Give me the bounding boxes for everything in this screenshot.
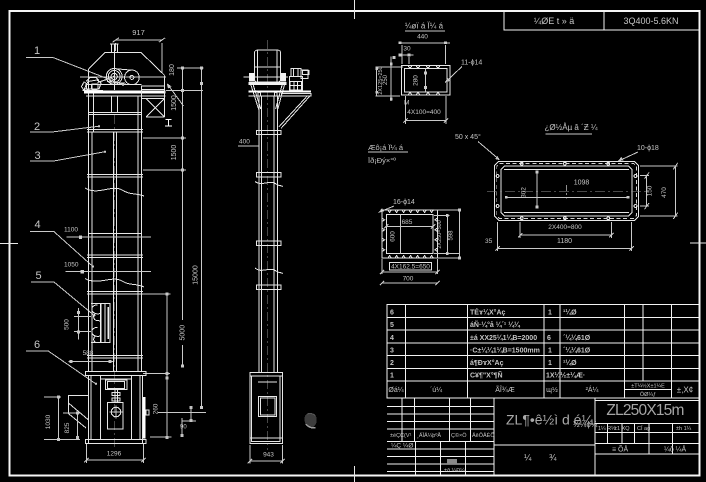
svg-text:3: 3 [390, 347, 394, 354]
svg-text:50 x 45°: 50 x 45° [455, 133, 481, 141]
svg-text:≡ ÕÅ: ≡ ÕÅ [612, 445, 628, 454]
svg-text:598: 598 [448, 230, 454, 241]
svg-text:4X162.5=650: 4X162.5=650 [391, 264, 430, 271]
svg-text:¹¼Ø: ¹¼Ø [563, 309, 577, 317]
svg-text:·C±¼¼1¼B=1500mm: ·C±¼¼1¼B=1500mm [470, 346, 540, 354]
svg-text:´¼¼61Ø: ´¼¼61Ø [563, 334, 591, 342]
svg-text:1296: 1296 [107, 451, 122, 458]
svg-text:Ïð¡Ðý×°º: Ïð¡Ðý×°º [368, 156, 396, 165]
svg-text:±T¼½X±1¼E: ±T¼½X±1¼E [631, 383, 665, 390]
svg-text:6: 6 [34, 339, 40, 351]
svg-text:5: 5 [390, 322, 394, 329]
svg-text:700: 700 [403, 276, 414, 283]
svg-text:±1 XQ: ±1 XQ [614, 426, 630, 432]
svg-text:90: 90 [180, 425, 187, 431]
svg-text:¿Ø½Åµ â ´Ƶ ¼: ¿Ø½Åµ â ´Ƶ ¼ [544, 123, 597, 132]
svg-text:470: 470 [661, 187, 668, 198]
svg-text:1180: 1180 [557, 238, 572, 245]
svg-text:Øá¼: Øá¼ [388, 387, 403, 394]
svg-text:±ð ¼Ð¼: ±ð ¼Ð¼ [444, 467, 465, 474]
svg-text:35: 35 [485, 238, 493, 245]
svg-text:´ú¼: ´ú¼ [430, 387, 442, 394]
svg-text:CÎ ag: CÎ ag [637, 425, 650, 432]
svg-text:±h 1¼: ±h 1¼ [676, 426, 692, 432]
svg-text:¼: ¼ [524, 453, 532, 463]
svg-text:±á XX25¼1¼B=2000: ±á XX25¼1¼B=2000 [470, 334, 537, 342]
svg-text:685: 685 [402, 219, 413, 226]
svg-text:ÖØ¼ƒ: ÖØ¼ƒ [640, 391, 656, 398]
svg-text:±,X¢: ±,X¢ [677, 386, 693, 395]
svg-text:C¥¶"X°¶Ñ: C¥¶"X°¶Ñ [470, 371, 503, 380]
svg-text:250: 250 [383, 74, 389, 85]
svg-text:ÄêÔÂÈÕ: ÄêÔÂÈÕ [472, 432, 495, 439]
svg-text:1100: 1100 [64, 227, 78, 234]
svg-text:4X100=400: 4X100=400 [407, 109, 441, 116]
svg-text:500: 500 [64, 319, 71, 330]
svg-text:ZL250X15m: ZL250X15m [606, 402, 683, 419]
svg-text:400: 400 [239, 139, 250, 146]
svg-text:¹¼Ø: ¹¼Ø [563, 359, 577, 367]
svg-text:1: 1 [548, 360, 552, 367]
svg-text:Æô¡á Ï¼ á: Æô¡á Ï¼ á [368, 143, 404, 152]
svg-text:440: 440 [417, 34, 428, 41]
svg-text:1050: 1050 [64, 262, 79, 269]
svg-text:1: 1 [548, 347, 552, 354]
svg-text:´¼¼61Ø: ´¼¼61Ø [563, 346, 591, 354]
svg-text:6: 6 [547, 335, 551, 342]
svg-text:150: 150 [647, 185, 654, 196]
svg-text:1X¼½±¼Æ·: 1X¼½±¼Æ· [546, 372, 585, 380]
svg-text:ɰ½: ɰ½ [546, 386, 558, 394]
svg-text:2X250=500: 2X250=500 [437, 220, 443, 248]
svg-text:280: 280 [413, 75, 420, 86]
svg-text:¸ÄÎÄ¼þºÅ: ¸ÄÎÄ¼þºÅ [417, 432, 441, 439]
svg-text:M: M [404, 100, 409, 107]
svg-text:825: 825 [64, 422, 71, 433]
svg-text:¼øï á Ï¼ á: ¼øï á Ï¼ á [405, 22, 444, 31]
svg-text:1500: 1500 [171, 145, 178, 161]
svg-text:2: 2 [34, 121, 40, 133]
svg-text:5: 5 [36, 270, 42, 282]
svg-text:¾: ¾ [549, 453, 557, 463]
svg-text:á¶ÐɤX°Aç: á¶ÐɤX°Aç [470, 359, 504, 367]
svg-text:943: 943 [263, 452, 274, 459]
svg-text:30: 30 [403, 46, 411, 53]
svg-text:½¼ɸ¼: ½¼ɸ¼ [573, 420, 598, 429]
svg-text:6: 6 [390, 310, 394, 317]
svg-text:16-ϕ14: 16-ϕ14 [393, 199, 415, 206]
svg-text:4: 4 [390, 335, 394, 342]
svg-text:²Á¼: ²Á¼ [586, 385, 599, 394]
svg-text:áÑ·¼°å ¼´¹ ¼¼: áÑ·¼°å ¼´¹ ¼¼ [470, 320, 521, 329]
svg-text:3: 3 [35, 150, 41, 162]
svg-text:917: 917 [132, 28, 145, 37]
svg-text:¼Ç ¼Ø: ¼Ç ¼Ø [391, 443, 413, 450]
svg-text:1: 1 [548, 310, 552, 317]
svg-text:¼ô ¼Å: ¼ô ¼Å [664, 445, 687, 454]
svg-text:15000: 15000 [192, 265, 199, 285]
svg-text:302: 302 [521, 187, 528, 198]
svg-text:ÃÎ¾Æ: ÃÎ¾Æ [495, 385, 514, 394]
svg-text:10-ϕ18: 10-ϕ18 [637, 145, 659, 152]
svg-text:3Q400-5.6KN: 3Q400-5.6KN [623, 16, 678, 26]
svg-text:1: 1 [390, 373, 394, 380]
svg-text:600: 600 [390, 231, 397, 242]
svg-text:1030: 1030 [45, 414, 52, 429]
svg-text:5000: 5000 [180, 325, 187, 341]
svg-text:2: 2 [390, 360, 394, 367]
svg-text:±éÇC(V¹: ±éÇC(V¹ [390, 433, 412, 439]
svg-text:2X400=800: 2X400=800 [548, 224, 582, 231]
svg-text:588: 588 [83, 350, 94, 357]
svg-text:180: 180 [169, 64, 176, 76]
svg-text:¼ØE t » ä: ¼ØE t » ä [534, 16, 575, 26]
svg-text:1: 1 [34, 45, 40, 57]
svg-text:11-ϕ14: 11-ϕ14 [461, 60, 482, 67]
svg-text:TÉɤ¼X°Aç: TÉɤ¼X°Aç [470, 308, 506, 317]
svg-text:Ç©×Ö: Ç©×Ö [451, 432, 467, 439]
svg-text:4: 4 [35, 219, 41, 231]
svg-text:1098: 1098 [574, 180, 590, 187]
